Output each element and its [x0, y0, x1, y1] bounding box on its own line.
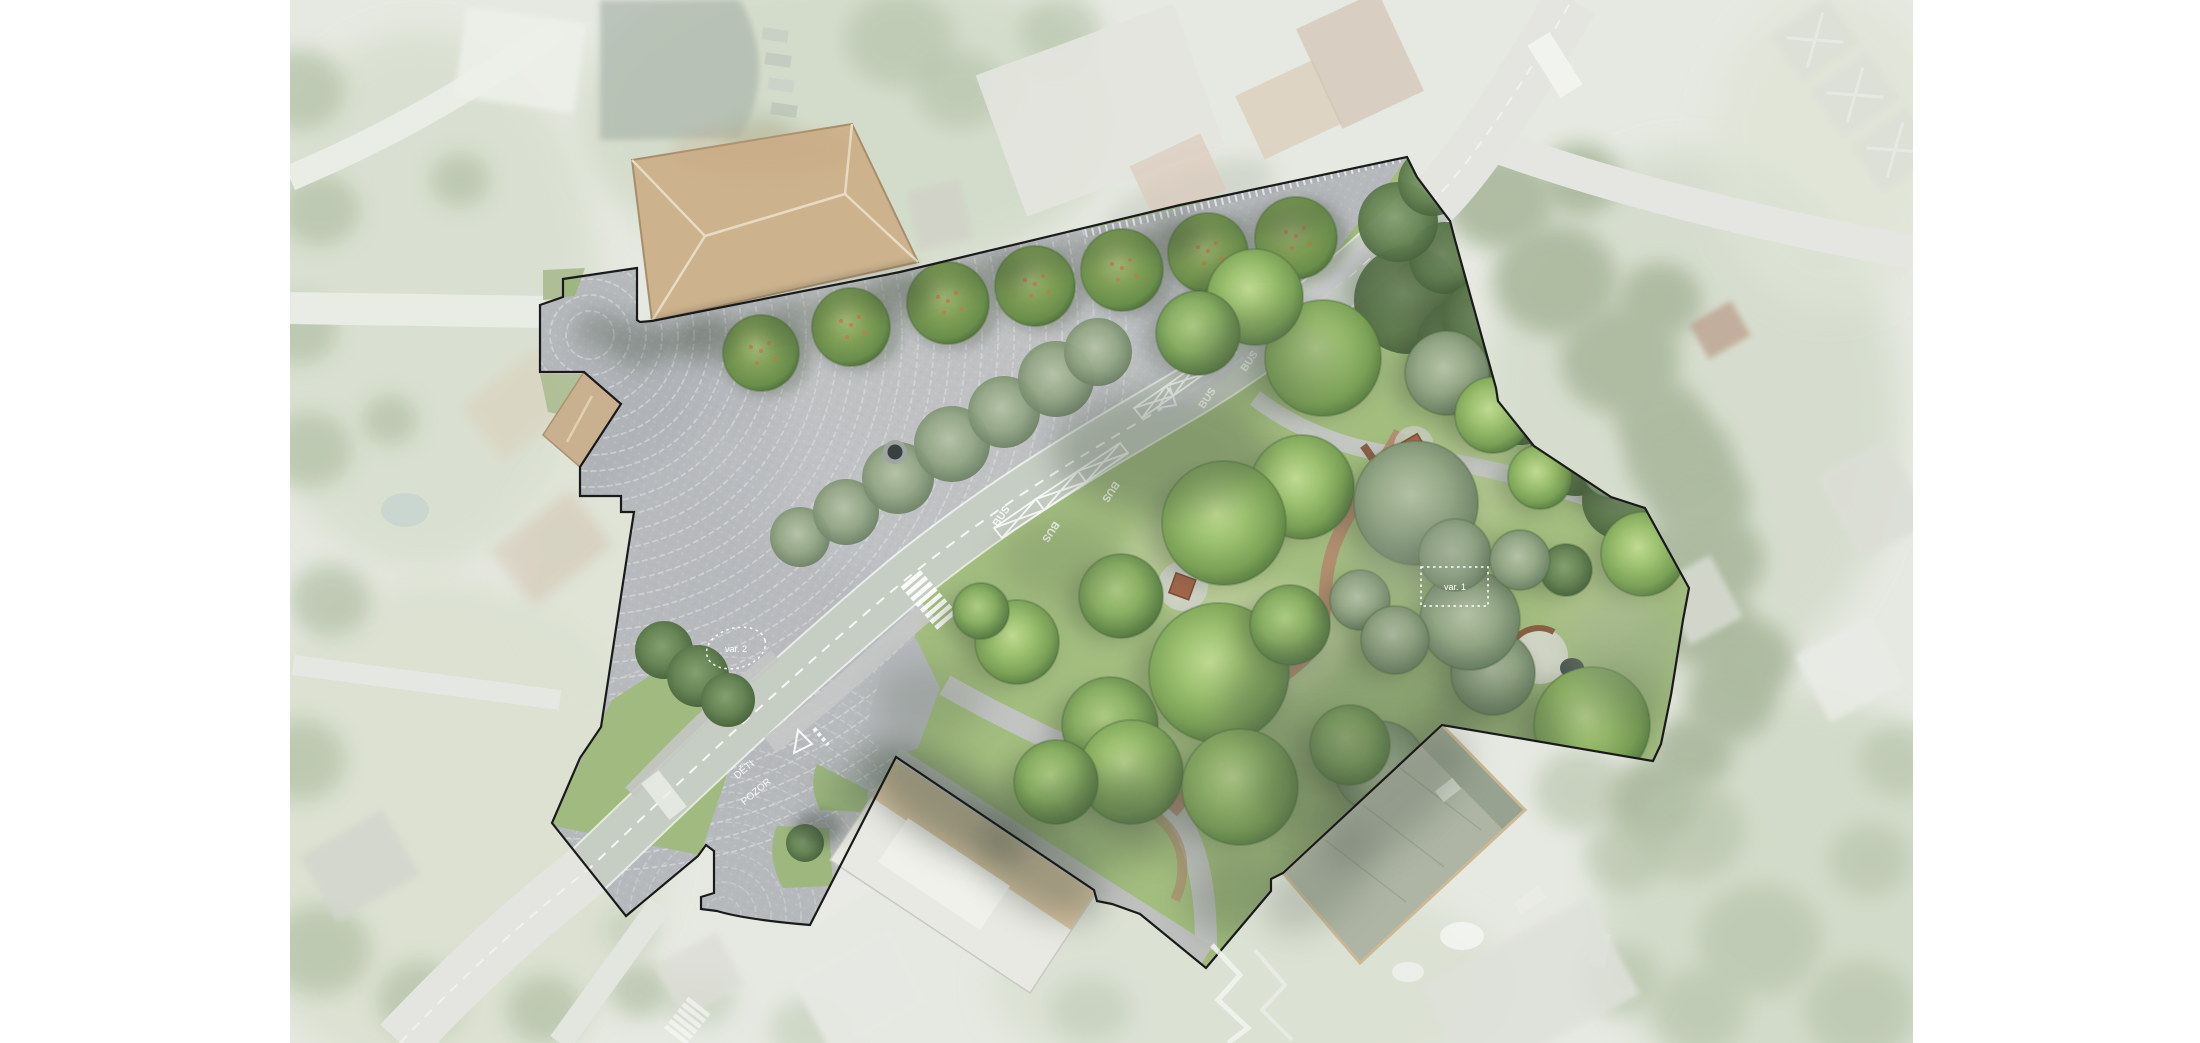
svg-text:var. 2: var. 2 — [725, 644, 747, 654]
svg-text:var. 1: var. 1 — [1444, 582, 1466, 592]
